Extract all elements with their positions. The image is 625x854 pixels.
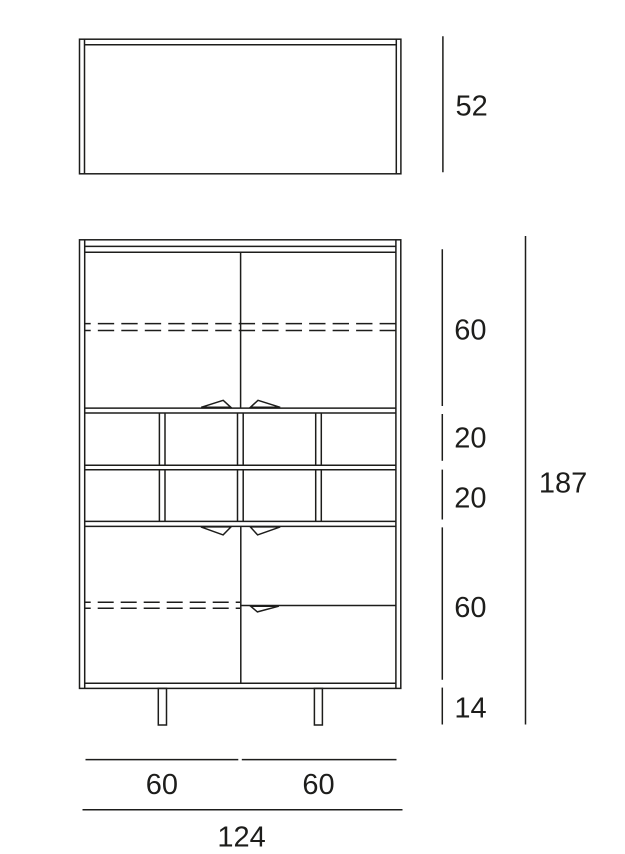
- svg-text:187: 187: [539, 468, 587, 500]
- svg-text:124: 124: [217, 822, 265, 854]
- svg-text:60: 60: [454, 315, 486, 347]
- svg-text:52: 52: [456, 91, 488, 123]
- svg-text:60: 60: [302, 769, 334, 801]
- svg-text:60: 60: [454, 592, 486, 624]
- svg-text:14: 14: [454, 693, 486, 725]
- svg-text:60: 60: [146, 769, 178, 801]
- svg-text:20: 20: [454, 482, 486, 514]
- svg-text:20: 20: [454, 423, 486, 455]
